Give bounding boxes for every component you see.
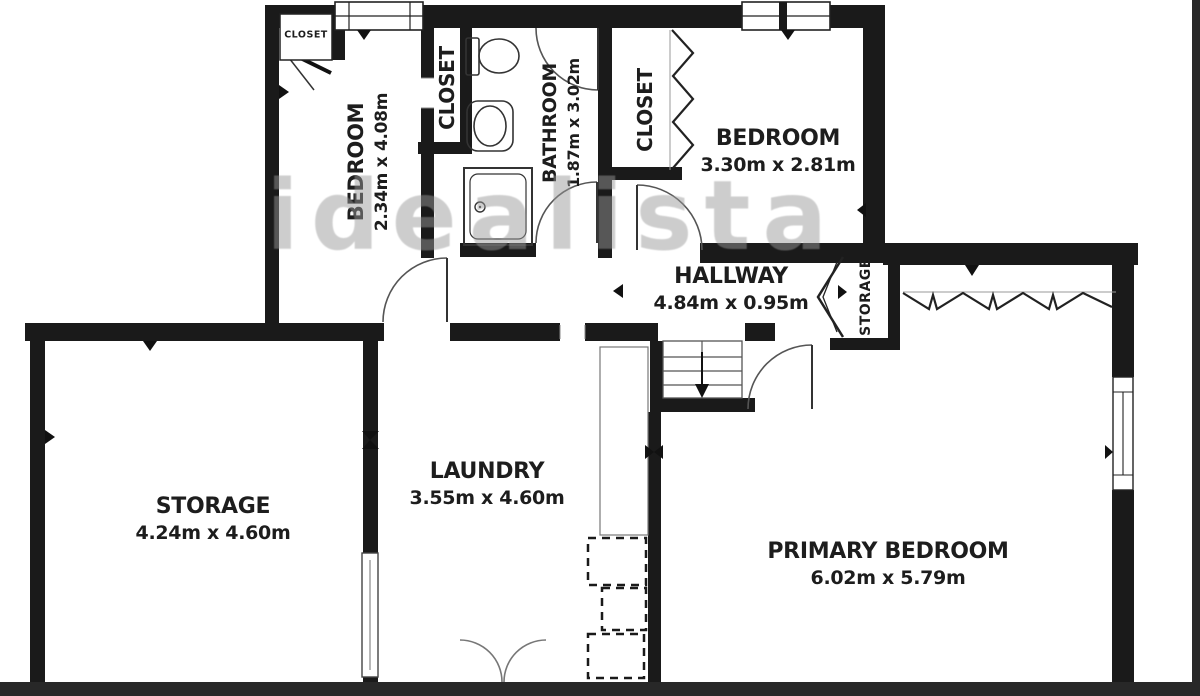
room-dims: 3.55m x 4.60m — [410, 486, 565, 511]
wall-left-upper — [265, 5, 279, 335]
room-name: LAUNDRY — [410, 457, 565, 486]
wall-closet-strip-left-a — [421, 28, 434, 78]
stairs — [663, 341, 742, 398]
wall-band-b — [450, 323, 560, 341]
door-laundry-double — [460, 640, 546, 682]
wall-storage-closet-bottom — [830, 338, 900, 350]
image-crop-strip-bottom — [0, 682, 1200, 696]
window-primary-right — [1113, 377, 1133, 490]
room-name: PRIMARY BEDROOM — [767, 537, 1008, 566]
room-label-storage: STORAGE 4.24m x 4.60m — [136, 492, 291, 546]
image-crop-strip-right — [1192, 0, 1200, 696]
closet-mid-label: CLOSET — [434, 46, 460, 130]
closet-top-right-label: CLOSET — [632, 68, 658, 152]
wall-closet2-bottom — [598, 167, 682, 180]
bathroom-fixtures — [464, 38, 532, 245]
wall-band-a — [25, 323, 384, 341]
wall-primary-right-b — [1112, 490, 1134, 682]
wall-band-d — [745, 323, 775, 341]
closet-top-left-label: CLOSET — [284, 30, 328, 43]
laundry-counter — [600, 347, 648, 535]
wall-storage-left — [30, 323, 45, 682]
storage-closet-label: STORAGE — [857, 258, 875, 336]
wall-band-c — [585, 323, 658, 341]
closet-rail-primary — [903, 292, 1116, 309]
room-dims: 4.24m x 4.60m — [136, 521, 291, 546]
closet-rail-bedroom2 — [670, 30, 693, 170]
room-name: BEDROOM — [701, 124, 856, 153]
stairs-down-arrow — [695, 352, 709, 398]
wall-primary-north — [883, 243, 1138, 265]
floor-plan-drawing — [0, 0, 1200, 696]
door-hallway-primary — [748, 345, 812, 409]
door-bedroom1 — [383, 258, 447, 322]
door-bathroom-south — [536, 182, 597, 243]
door-bedroom2 — [637, 185, 702, 250]
room-name: BEDROOM — [343, 93, 371, 231]
appliance-1 — [588, 538, 646, 585]
laundry-fittings — [588, 347, 648, 678]
wall-closet-strip-left-b — [421, 108, 434, 258]
room-label-bedroom-top-left: BEDROOM 2.34m x 4.08m — [343, 93, 393, 231]
wall-primary-right-a — [1112, 243, 1134, 377]
room-label-hallway: HALLWAY 4.84m x 0.95m — [654, 262, 809, 316]
room-dims: 1.87m x 3.02m — [563, 58, 584, 188]
room-name: HALLWAY — [654, 262, 809, 291]
room-dims: 6.02m x 5.79m — [767, 566, 1008, 591]
room-label-bedroom-top-right: BEDROOM 3.30m x 2.81m — [701, 124, 856, 178]
pocket-door-storage-laundry — [362, 553, 378, 677]
appliance-2 — [602, 588, 646, 630]
wall-right-upper — [863, 5, 885, 257]
floor-plan: CLOSET BEDROOM 2.34m x 4.08m CLOSET BATH… — [0, 0, 1200, 696]
room-label-laundry: LAUNDRY 3.55m x 4.60m — [410, 457, 565, 511]
toilet — [466, 38, 519, 75]
wall-stair-bottom — [650, 398, 755, 412]
wall-bathroom-right — [598, 28, 612, 258]
room-label-bathroom: BATHROOM 1.87m x 3.02m — [538, 58, 584, 188]
appliances-dashed — [588, 538, 646, 678]
room-name: STORAGE — [136, 492, 291, 521]
room-dims: 4.84m x 0.95m — [654, 291, 809, 316]
window-bedroom2-top — [742, 2, 830, 30]
window-bedroom1-top — [335, 2, 423, 30]
room-dims: 3.30m x 2.81m — [701, 153, 856, 178]
room-name: BATHROOM — [538, 58, 563, 188]
shower — [464, 168, 532, 245]
appliance-3 — [588, 634, 644, 678]
sink — [467, 101, 513, 151]
room-dims: 2.34m x 4.08m — [371, 93, 393, 231]
room-label-primary-bedroom: PRIMARY BEDROOM 6.02m x 5.79m — [767, 537, 1008, 591]
